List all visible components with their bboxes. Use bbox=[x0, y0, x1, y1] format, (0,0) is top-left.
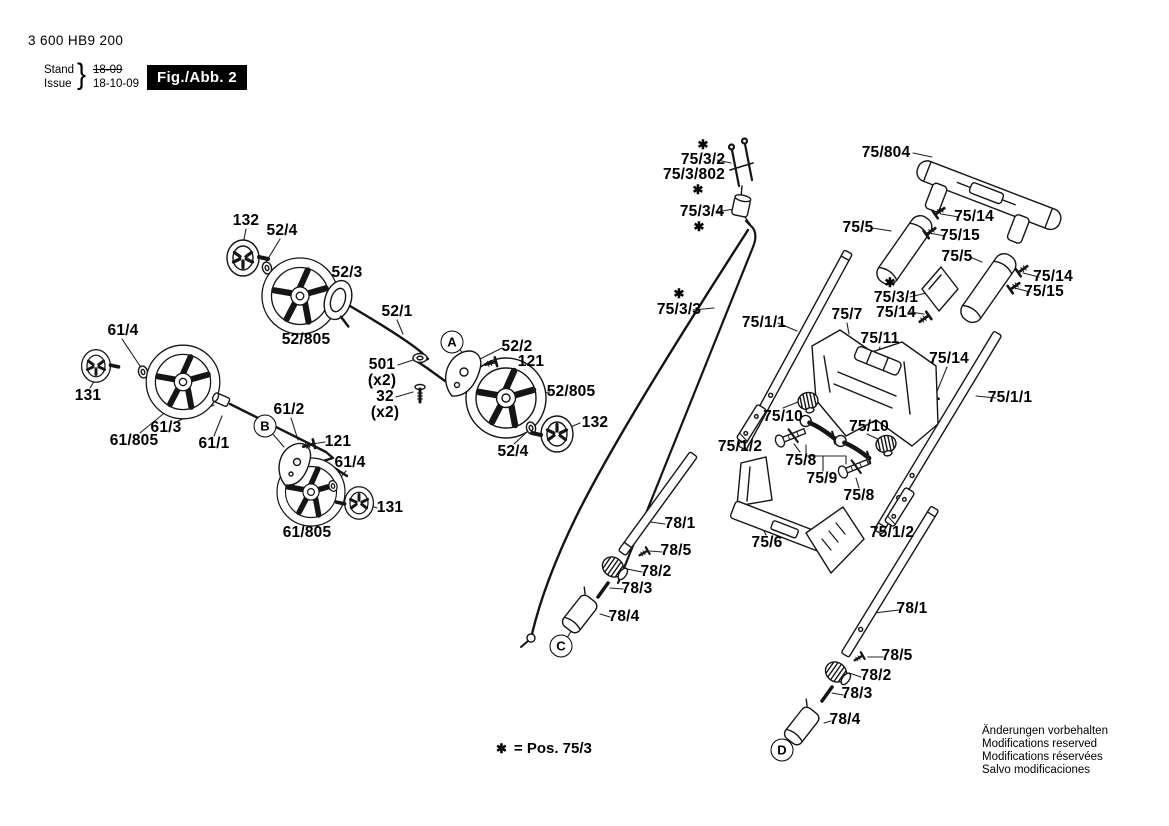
part-label: 75/1/2 bbox=[718, 438, 762, 456]
disclaimer-block: Änderungen vorbehaltenModifications rese… bbox=[982, 725, 1108, 777]
part-label: 131 bbox=[75, 387, 101, 405]
part-label: 61/805 bbox=[283, 524, 332, 542]
star-marker: ✱ bbox=[673, 286, 684, 302]
part-label: 78/5 bbox=[882, 647, 913, 665]
label-layer: 13252/452/352/152/80561/413161/361/80561… bbox=[0, 0, 1169, 826]
part-label: 131 bbox=[377, 499, 403, 517]
part-label: 75/14 bbox=[929, 350, 969, 368]
part-label: 75/1/1 bbox=[742, 314, 786, 332]
part-label: 78/3 bbox=[622, 580, 653, 598]
part-label: 75/15 bbox=[940, 227, 980, 245]
part-label: 78/4 bbox=[609, 608, 640, 626]
footnote-text: = Pos. 75/3 bbox=[514, 740, 592, 757]
part-label: 78/1 bbox=[897, 600, 928, 618]
part-label: 78/2 bbox=[641, 563, 672, 581]
part-label: 52/4 bbox=[498, 443, 529, 461]
part-label: 75/5 bbox=[942, 248, 973, 266]
part-label: 78/5 bbox=[661, 542, 692, 560]
part-label: 75/804 bbox=[862, 144, 911, 162]
part-label: 78/2 bbox=[861, 667, 892, 685]
part-label: 121 bbox=[325, 433, 351, 451]
part-label: 52/805 bbox=[282, 331, 331, 349]
part-label: 52/805 bbox=[547, 383, 596, 401]
part-label: 61/1 bbox=[199, 435, 230, 453]
part-label: 78/4 bbox=[830, 711, 861, 729]
footer-line: Modifications reserved bbox=[982, 738, 1108, 751]
part-label: 75/15 bbox=[1024, 283, 1064, 301]
part-label: 132 bbox=[582, 414, 608, 432]
part-label: 121 bbox=[518, 353, 544, 371]
footer-line: Modifications réservées bbox=[982, 751, 1108, 764]
part-label: 75/5 bbox=[843, 219, 874, 237]
part-label: 61/805 bbox=[110, 432, 159, 450]
star-marker: ✱ bbox=[692, 182, 703, 198]
part-label: (x2) bbox=[371, 404, 399, 422]
part-label: 52/3 bbox=[332, 264, 363, 282]
footer-line: Änderungen vorbehalten bbox=[982, 725, 1108, 738]
ref-letter-a: A bbox=[441, 331, 464, 354]
part-label: 75/8 bbox=[786, 452, 817, 470]
part-label: 75/8 bbox=[844, 487, 875, 505]
footnote: ✱= Pos. 75/3 bbox=[496, 740, 592, 757]
part-label: 78/1 bbox=[665, 515, 696, 533]
ref-letter-c: C bbox=[550, 635, 573, 658]
part-label: 75/7 bbox=[832, 306, 863, 324]
parts-diagram-page: 3 600 HB9 200 Stand Issue } 18-09 18-10-… bbox=[0, 0, 1169, 826]
star-marker: ✱ bbox=[496, 741, 507, 756]
part-label: 61/2 bbox=[274, 401, 305, 419]
part-label: 75/11 bbox=[861, 330, 900, 348]
part-label: 75/10 bbox=[763, 408, 803, 426]
part-label: 75/14 bbox=[876, 304, 916, 322]
part-label: 75/3/3 bbox=[657, 301, 701, 319]
part-label: 78/3 bbox=[842, 685, 873, 703]
part-label: 52/4 bbox=[267, 222, 298, 240]
ref-letter-d: D bbox=[771, 739, 794, 762]
part-label: 75/1/1 bbox=[988, 389, 1032, 407]
part-label: 61/4 bbox=[335, 454, 366, 472]
part-label: 52/1 bbox=[382, 303, 413, 321]
part-label: 75/6 bbox=[752, 534, 783, 552]
part-label: 75/10 bbox=[849, 418, 889, 436]
ref-letter-b: B bbox=[254, 415, 277, 438]
footer-line: Salvo modificaciones bbox=[982, 764, 1108, 777]
part-label: 75/1/2 bbox=[870, 524, 914, 542]
star-marker: ✱ bbox=[693, 219, 704, 235]
part-label: 75/14 bbox=[954, 208, 994, 226]
part-label: 132 bbox=[233, 212, 259, 230]
part-label: 75/9 bbox=[807, 470, 838, 488]
part-label: 61/4 bbox=[108, 322, 139, 340]
